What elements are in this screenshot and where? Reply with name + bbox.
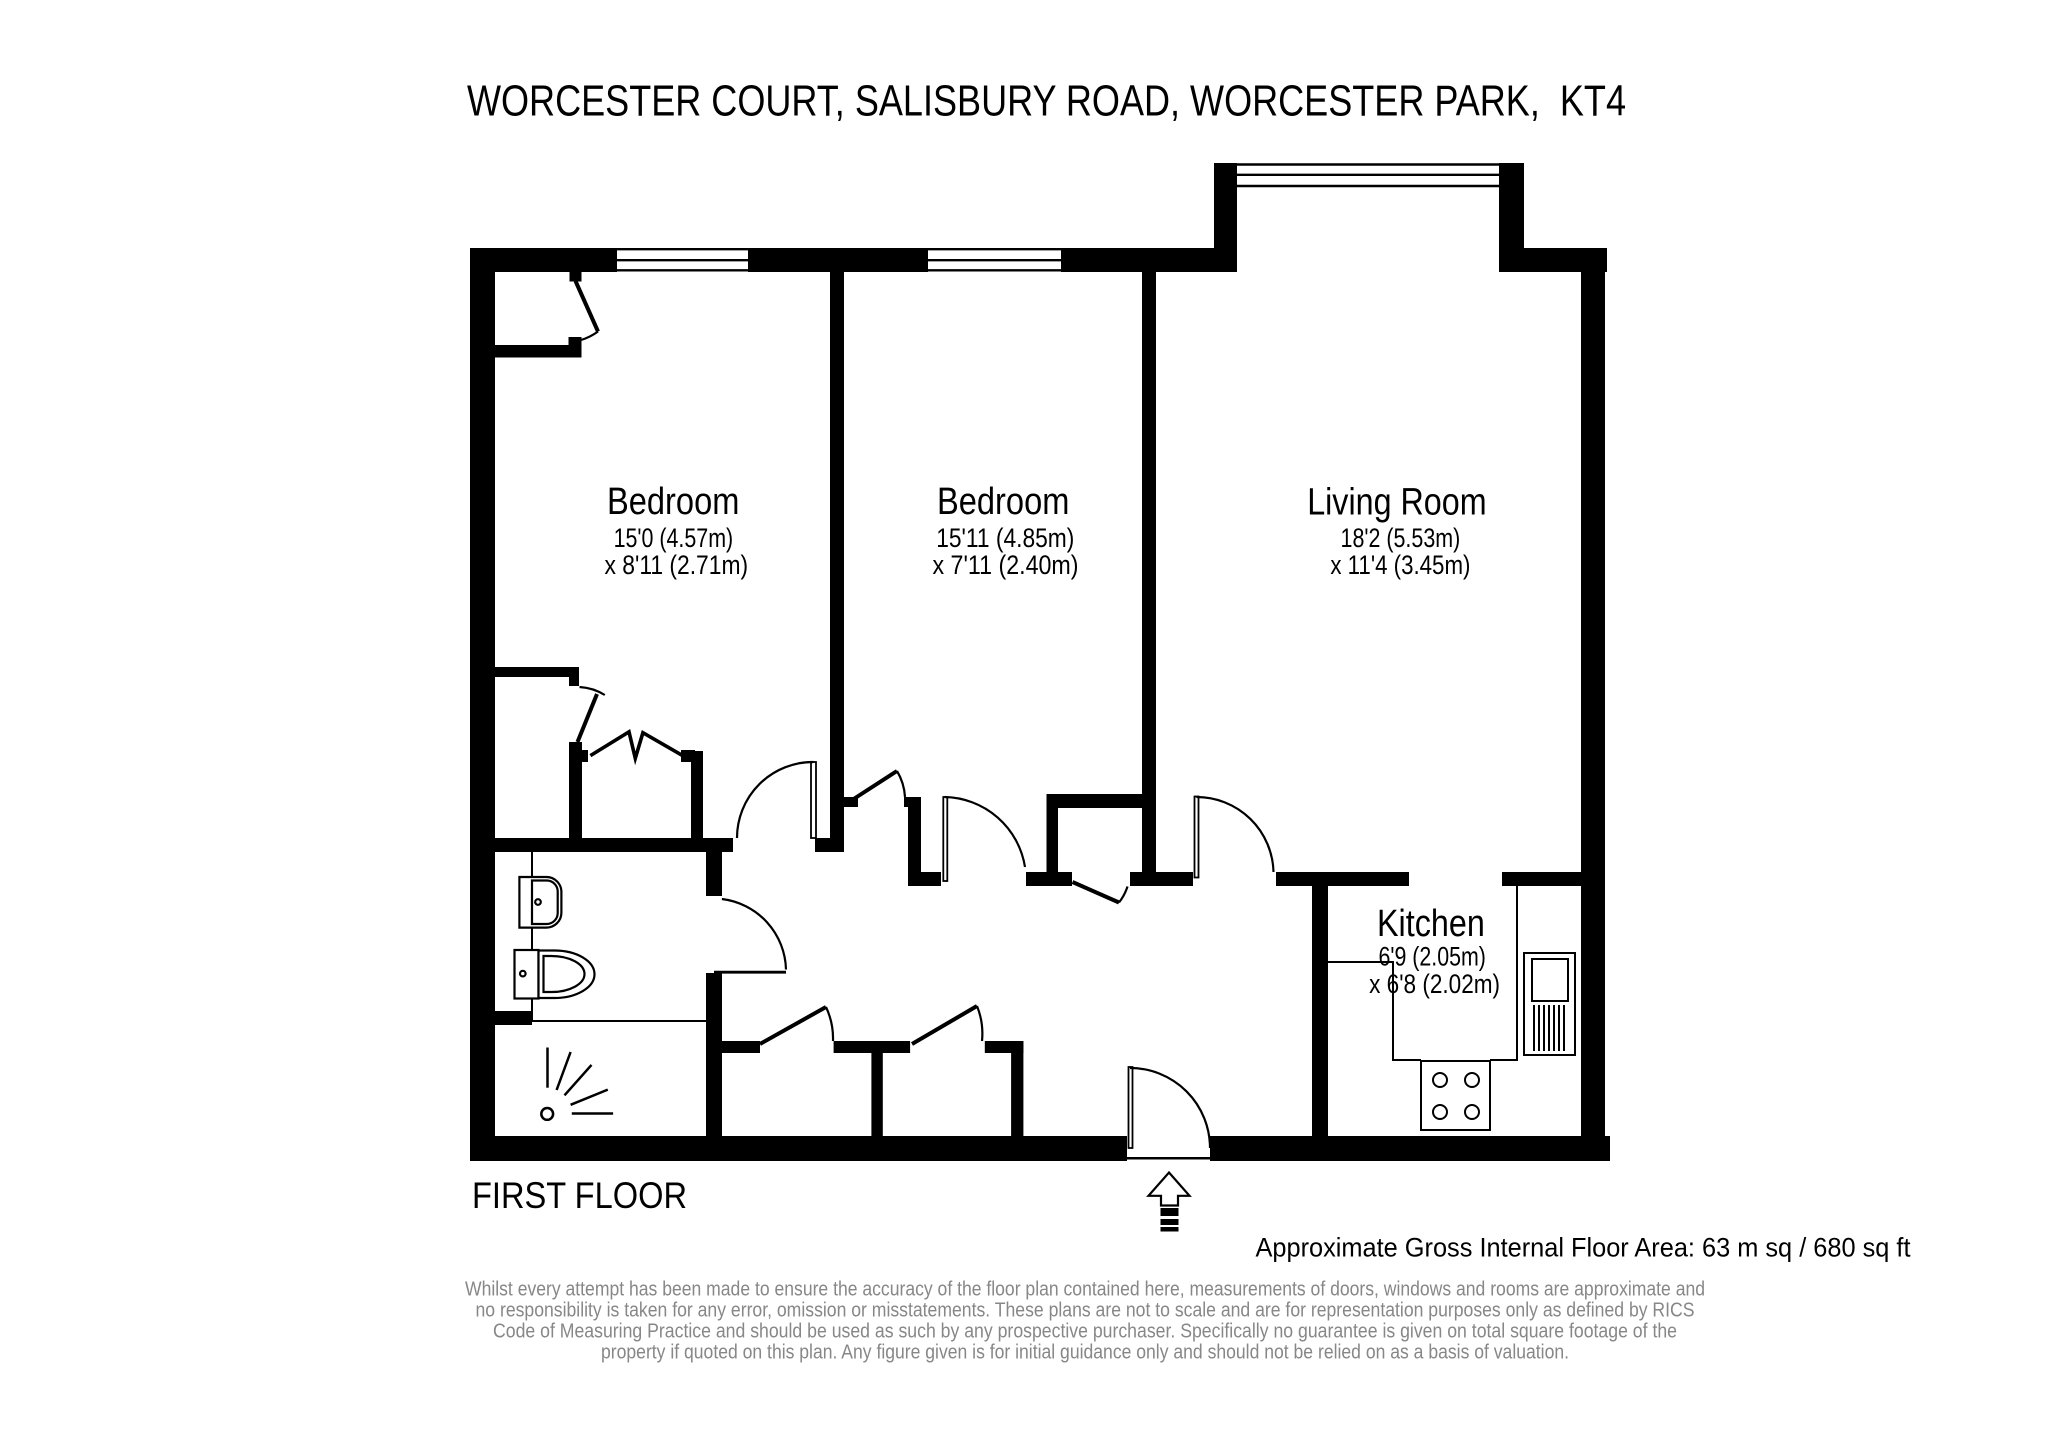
svg-text:WORCESTER COURT, SALISBURY ROA: WORCESTER COURT, SALISBURY ROAD, WORCEST… bbox=[467, 77, 1626, 125]
svg-text:Bedroom: Bedroom bbox=[607, 481, 739, 523]
svg-text:Whilst every attempt has been: Whilst every attempt has been made to en… bbox=[465, 1277, 1705, 1300]
svg-text:Bedroom: Bedroom bbox=[937, 481, 1069, 523]
svg-text:x 11'4 (3.45m): x 11'4 (3.45m) bbox=[1330, 549, 1470, 580]
svg-text:x 7'11 (2.40m): x 7'11 (2.40m) bbox=[932, 549, 1078, 580]
svg-text:6'9 (2.05m): 6'9 (2.05m) bbox=[1379, 941, 1486, 972]
svg-text:property if quoted on this pla: property if quoted on this plan. Any fig… bbox=[601, 1340, 1569, 1363]
svg-text:Living Room: Living Room bbox=[1307, 482, 1486, 524]
svg-text:Code of Measuring Practice and: Code of Measuring Practice and should be… bbox=[493, 1319, 1677, 1342]
svg-text:x 6'8 (2.02m): x 6'8 (2.02m) bbox=[1369, 968, 1500, 999]
svg-text:Kitchen: Kitchen bbox=[1377, 903, 1485, 945]
svg-text:Approximate Gross Internal Flo: Approximate Gross Internal Floor Area: 6… bbox=[1256, 1232, 1911, 1262]
svg-text:x 8'11 (2.71m): x 8'11 (2.71m) bbox=[605, 549, 749, 580]
svg-text:no responsibility is taken for: no responsibility is taken for any error… bbox=[476, 1298, 1695, 1321]
svg-text:FIRST FLOOR: FIRST FLOOR bbox=[472, 1175, 687, 1216]
